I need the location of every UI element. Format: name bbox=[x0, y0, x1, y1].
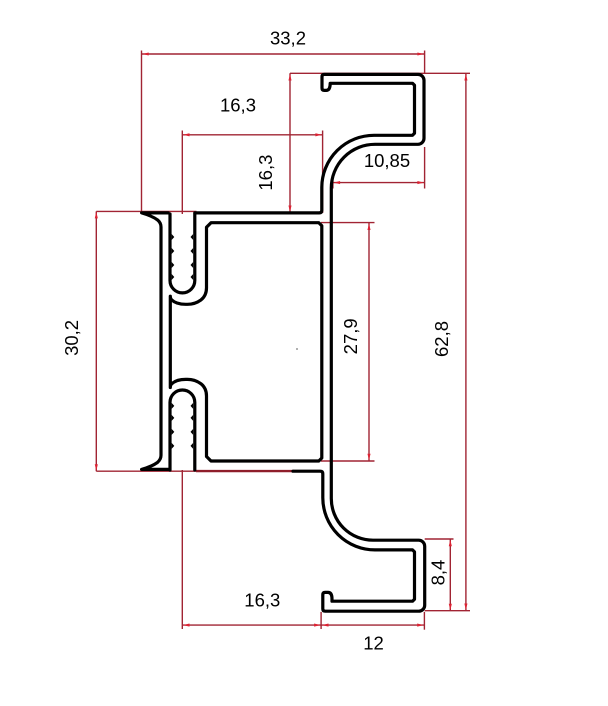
svg-text:30,2: 30,2 bbox=[61, 320, 82, 356]
svg-text:27,9: 27,9 bbox=[340, 318, 361, 354]
svg-text:12: 12 bbox=[363, 633, 384, 654]
svg-text:62,8: 62,8 bbox=[431, 321, 452, 357]
svg-text:16,3: 16,3 bbox=[255, 155, 276, 191]
svg-text:16,3: 16,3 bbox=[220, 94, 256, 115]
svg-text:16,3: 16,3 bbox=[244, 589, 280, 610]
svg-text:8,4: 8,4 bbox=[427, 560, 448, 586]
svg-text:33,2: 33,2 bbox=[270, 28, 306, 49]
svg-text:10,85: 10,85 bbox=[364, 150, 410, 171]
